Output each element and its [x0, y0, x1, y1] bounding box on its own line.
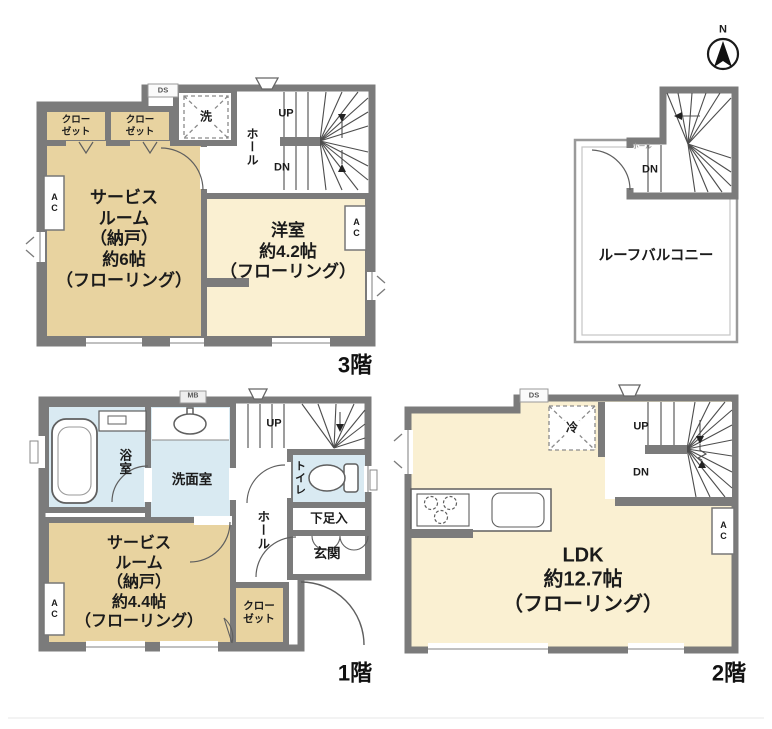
service-room-label-3f: サービスルーム（納戸）約6帖（フローリング） — [56, 188, 192, 292]
down-label-3f: DN — [274, 161, 290, 174]
hall-label-3f: ホール — [246, 128, 258, 167]
stair-landing-3f — [280, 137, 320, 146]
hall-label-roof: ホール — [632, 143, 652, 151]
service-room-label-1f: サービスルーム（納戸）約4.4帖（フローリング） — [75, 534, 203, 632]
ac-left-label-3f: AC — [50, 192, 59, 214]
label-line: （納戸） — [90, 230, 158, 251]
ac-right-label-3f: AC — [352, 217, 361, 239]
door-gap-service-1f — [194, 516, 232, 525]
label-line: 約6帖 — [102, 250, 145, 271]
sink-icon-2f — [492, 493, 544, 527]
stair-landing-2f — [645, 445, 687, 454]
duct-label-2f: DS — [529, 390, 539, 399]
ac-label-1f: AC — [50, 598, 59, 620]
label-line: 約4.2帖 — [259, 242, 317, 263]
label-line: ルーム — [115, 554, 163, 574]
balcony-label-roof: ルーフバルコニー — [599, 248, 714, 266]
entrance-label-1f: 玄関 — [314, 546, 341, 562]
washroom-label-1f: 洗面室 — [172, 472, 213, 488]
closet-label-1f: クローゼット — [243, 600, 275, 626]
up-label-3f: UP — [278, 107, 293, 120]
floorplan-page: クローゼット クローゼット 洗 ホール UP DN サービスルーム（納戸）約6帖… — [0, 0, 772, 729]
toilet-window-1f — [364, 466, 377, 492]
label-line: （フローリング） — [75, 612, 203, 632]
kitchen-counter — [408, 489, 551, 538]
entrance-door-arc — [301, 582, 364, 645]
ldk-label-2f: LDK約12.7帖（フローリング） — [503, 543, 663, 616]
fridge-label-2f: 冷 — [564, 421, 580, 436]
stove-icon — [417, 494, 469, 526]
label-line: （フローリング） — [503, 592, 663, 616]
floor-label-1f: 1階 — [338, 661, 372, 688]
wall-stub-2f — [598, 402, 605, 457]
door-gap-service-3f — [200, 147, 208, 189]
laundry-label-3f: 洗 — [198, 110, 214, 125]
label-line: （フローリング） — [220, 262, 356, 283]
ac-label-2f: AC — [719, 520, 728, 542]
label-line: 洋室 — [271, 221, 305, 242]
down-label-roof: DN — [642, 163, 658, 176]
hall-label-1f: ホール — [256, 510, 269, 551]
label-line: （納戸） — [107, 573, 171, 593]
door-gap-roof — [626, 148, 634, 188]
bath-label-1f: 浴室 — [118, 449, 131, 476]
label-line: 約12.7帖 — [544, 568, 623, 592]
meter-label-1f: MB — [188, 393, 199, 402]
label-line: クロー — [243, 600, 275, 613]
label-line: LDK — [562, 543, 603, 567]
closet-right-label-3f: クローゼット — [126, 114, 155, 137]
door-gap-bath — [144, 468, 152, 502]
label-line: ルーム — [99, 209, 150, 230]
label-line: ゼット — [243, 613, 275, 626]
label-line: ゼット — [126, 126, 155, 138]
down-label-2f: DN — [633, 466, 649, 479]
door-gap-toilet — [283, 462, 291, 498]
floor-label-2f: 2階 — [712, 661, 746, 688]
label-line: （フローリング） — [56, 271, 192, 292]
shoe-label-1f: 下足入 — [310, 511, 348, 526]
vent-icon-2f — [619, 385, 640, 396]
stair-bottom-wall-2f — [615, 497, 735, 506]
kitchen-half-wall — [408, 529, 473, 538]
compass-icon — [708, 39, 738, 69]
up-label-1f: UP — [266, 417, 281, 430]
floor-label-3f: 3階 — [338, 353, 372, 380]
closet-left-label-3f: クローゼット — [62, 114, 91, 137]
label-line: クロー — [62, 114, 91, 126]
door-gap-washroom — [229, 468, 237, 500]
compass-north-label: N — [719, 23, 727, 36]
toilet-icon — [309, 464, 358, 492]
western-room-label-3f: 洋室約4.2帖（フローリング） — [220, 221, 356, 283]
bath-window-1f — [30, 436, 45, 468]
label-line: サービス — [90, 188, 158, 209]
up-label-2f: UP — [633, 420, 648, 433]
label-line: ゼット — [62, 126, 91, 138]
label-line: クロー — [126, 114, 155, 126]
page-bottom-divider — [8, 717, 764, 719]
floorplan-roof — [575, 39, 738, 342]
label-line: サービス — [107, 534, 171, 554]
label-line: 約4.4帖 — [112, 593, 166, 613]
toilet-label-1f: トイレ — [294, 460, 305, 496]
duct-label-3f: DS — [158, 85, 168, 94]
